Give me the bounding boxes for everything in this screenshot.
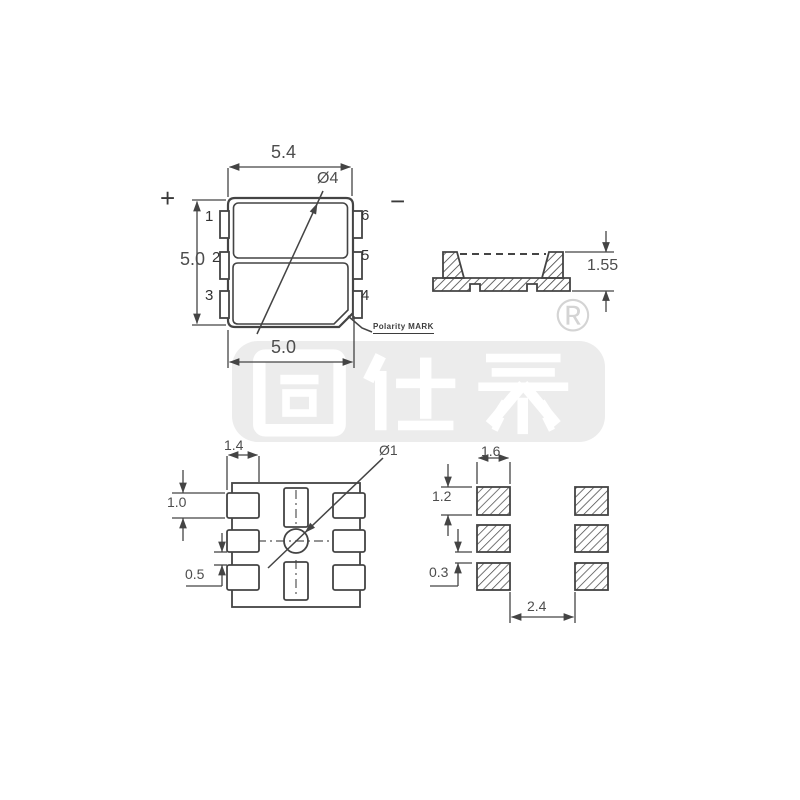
pin-label-3: 3 [205, 288, 213, 303]
polarity-plus-sign: + [160, 185, 175, 211]
dim-top-width-label: 5.4 [271, 143, 296, 161]
pin-label-1: 1 [205, 209, 213, 224]
pin-label-2: 2 [212, 250, 220, 265]
side-wall-right [542, 252, 563, 278]
dim-solder-pad-height-label: 1.2 [432, 489, 451, 503]
polarity-mark-label: Polarity MARK [373, 323, 434, 334]
bottom-view-linework [160, 430, 420, 640]
dim-solder-pad-gap-label: 0.3 [429, 565, 448, 579]
solder-pads [477, 487, 608, 590]
pin-label-4: 4 [361, 288, 369, 303]
dim-bottom-pad-width-label: 1.4 [224, 438, 243, 452]
glyph-tai [478, 353, 568, 433]
dim-package-height-label: 1.55 [587, 258, 618, 274]
dim-bottom-width-label: 5.0 [271, 338, 296, 356]
polarity-minus-sign: − [390, 188, 405, 214]
lens-diameter-label: Ø4 [317, 171, 338, 187]
side-base-plate [433, 278, 570, 291]
pin-label-5: 5 [361, 248, 369, 263]
center-hole-diameter-label: Ø1 [379, 443, 398, 457]
dim-bottom-pad-gap-label: 0.5 [185, 567, 204, 581]
led-cavity-top [234, 203, 348, 258]
dim-bottom-pad-height-label: 1.0 [167, 495, 186, 509]
led-package-dimension-drawing: ® [0, 0, 800, 800]
dim-left-height-label: 5.0 [180, 250, 205, 268]
led-cavity-bottom [233, 263, 348, 324]
dim-column-spacing-label: 2.4 [527, 599, 546, 613]
dim-solder-pad-width-label: 1.6 [481, 444, 500, 458]
pin-label-6: 6 [361, 208, 369, 223]
side-wall-left [443, 252, 464, 278]
